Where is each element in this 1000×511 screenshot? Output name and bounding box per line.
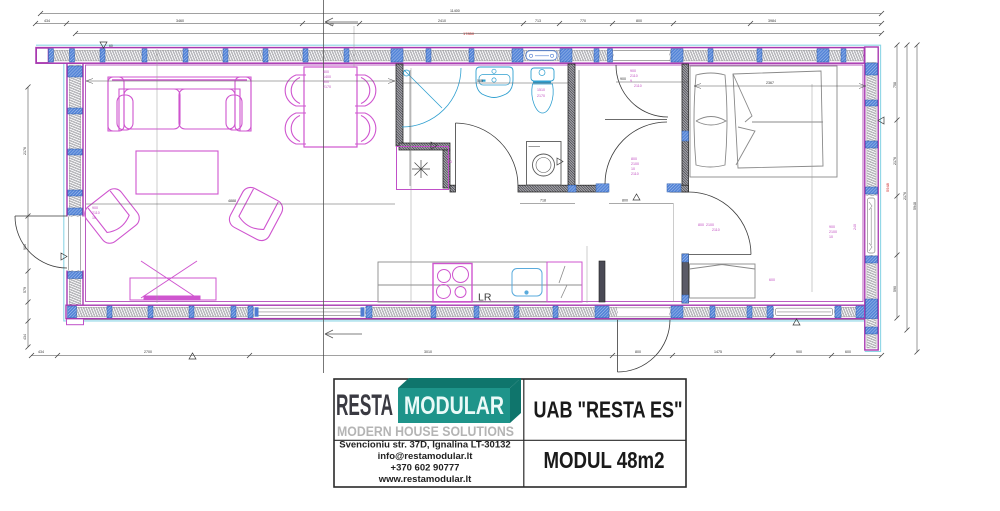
- svg-text:LR: LR: [478, 292, 492, 304]
- svg-text:900: 900: [620, 77, 626, 81]
- svg-text:2110: 2110: [630, 74, 638, 78]
- svg-text:434: 434: [23, 334, 27, 340]
- svg-text:5948: 5948: [913, 202, 917, 210]
- svg-text:900: 900: [829, 225, 835, 229]
- svg-text:2100: 2100: [631, 162, 639, 166]
- svg-text:800: 800: [323, 70, 329, 74]
- svg-text:90: 90: [446, 155, 450, 159]
- svg-text:2367: 2367: [766, 81, 774, 85]
- svg-text:10: 10: [829, 235, 833, 239]
- svg-text:Svencioniu str. 37D, Ignalina: Svencioniu str. 37D, Ignalina LT-30132: [339, 440, 510, 451]
- svg-text:60: 60: [109, 44, 113, 48]
- svg-text:2170: 2170: [323, 85, 331, 89]
- svg-text:MODULAR: MODULAR: [404, 392, 504, 420]
- svg-text:MODUL 48m2: MODUL 48m2: [544, 447, 665, 473]
- svg-text:900: 900: [796, 350, 802, 354]
- svg-text:2700: 2700: [144, 350, 152, 354]
- svg-text:10: 10: [92, 216, 96, 220]
- svg-text:600: 600: [769, 278, 775, 282]
- svg-text:+370 602 90777: +370 602 90777: [391, 463, 460, 474]
- svg-text:2100: 2100: [829, 230, 837, 234]
- svg-text:11400: 11400: [450, 9, 460, 13]
- svg-text:www.restamodular.lt: www.restamodular.lt: [378, 474, 472, 485]
- svg-text:1400: 1400: [323, 75, 331, 79]
- svg-text:RESTA: RESTA: [336, 389, 393, 422]
- svg-text:3010: 3010: [424, 350, 432, 354]
- svg-text:190: 190: [446, 160, 452, 164]
- svg-text:3984: 3984: [768, 19, 776, 23]
- svg-text:2170: 2170: [537, 94, 545, 98]
- svg-text:5948: 5948: [885, 182, 890, 192]
- svg-text:434: 434: [38, 350, 44, 354]
- svg-text:900: 900: [92, 206, 98, 210]
- svg-text:900: 900: [323, 80, 329, 84]
- svg-text:800: 800: [636, 19, 642, 23]
- svg-text:2110: 2110: [712, 228, 720, 232]
- svg-text:900: 900: [23, 244, 27, 250]
- svg-text:2100: 2100: [706, 223, 714, 227]
- svg-text:4888: 4888: [228, 199, 236, 203]
- svg-text:585: 585: [477, 79, 483, 83]
- svg-text:900: 900: [630, 69, 636, 73]
- svg-text:240: 240: [853, 224, 857, 230]
- svg-text:MODERN HOUSE SOLUTIONS: MODERN HOUSE SOLUTIONS: [337, 424, 514, 439]
- svg-text:info@restamodular.lt: info@restamodular.lt: [378, 451, 474, 462]
- svg-text:758: 758: [893, 82, 897, 88]
- svg-text:1510: 1510: [537, 88, 545, 92]
- svg-text:2410: 2410: [438, 19, 446, 23]
- svg-text:1475: 1475: [714, 350, 722, 354]
- svg-text:800: 800: [635, 350, 641, 354]
- svg-text:10: 10: [631, 167, 635, 171]
- svg-text:2110: 2110: [634, 84, 642, 88]
- svg-text:800: 800: [631, 157, 637, 161]
- svg-text:2176: 2176: [23, 147, 27, 155]
- svg-text:590: 590: [893, 286, 897, 292]
- svg-text:800: 800: [622, 199, 628, 203]
- svg-text:2176: 2176: [893, 157, 897, 165]
- svg-text:713: 713: [535, 19, 541, 23]
- svg-text:718: 718: [540, 199, 546, 203]
- svg-text:2110: 2110: [92, 211, 100, 215]
- svg-text:2176: 2176: [903, 192, 907, 200]
- svg-text:770: 770: [580, 19, 586, 23]
- svg-text:800: 800: [698, 223, 704, 227]
- svg-text:434: 434: [44, 19, 50, 23]
- svg-text:9: 9: [630, 79, 632, 83]
- svg-text:UAB "RESTA ES": UAB "RESTA ES": [534, 397, 683, 423]
- svg-text:2110: 2110: [631, 172, 639, 176]
- svg-text:579: 579: [23, 287, 27, 293]
- svg-text:600: 600: [845, 350, 851, 354]
- svg-text:3460: 3460: [176, 19, 184, 23]
